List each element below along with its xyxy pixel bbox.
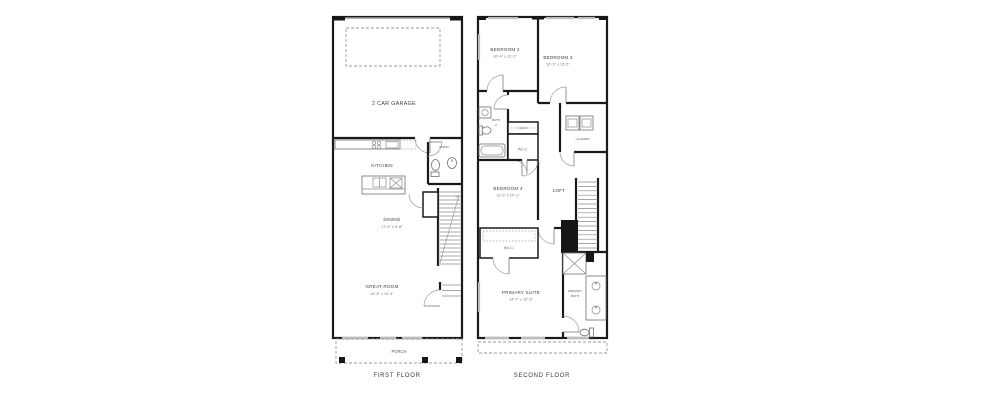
room-dims-dining: 17'-5" x 9'-8" — [381, 225, 403, 229]
room-label-primary-bath-line2: BATH — [571, 294, 579, 298]
room-label-pwdr: PWDR — [439, 145, 449, 149]
room-dims-bedroom4: 11'-0" x 10'-1" — [496, 194, 520, 198]
wall-post — [332, 16, 345, 21]
porch-post — [456, 357, 462, 363]
wall-post — [450, 16, 463, 21]
second-floor-windows — [485, 337, 589, 339]
room-dims-primary-suite: 14'-7" x 15'-3" — [509, 298, 533, 302]
second-floor-plan: BEDROOM 2 10'-4" x 11'-1" BEDROOM 3 10'-… — [477, 16, 608, 386]
second-floor-caption: SECOND FLOOR — [514, 373, 570, 379]
room-label-wic-primary: W.I.C. — [504, 246, 514, 250]
room-label-great-room: GREAT ROOM — [366, 284, 399, 289]
first-floor-caption: FIRST FLOOR — [373, 373, 420, 379]
room-label-primary-bath-line1: PRIMARY — [568, 289, 582, 293]
room-label-kitchen: KITCHEN — [371, 163, 393, 168]
floorplan-image: 2 CAR GARAGE KITCHEN PWDR — [0, 0, 1000, 409]
room-label-bath2: BATH — [492, 118, 500, 122]
room-dims-bedroom2: 10'-4" x 11'-1" — [493, 55, 517, 59]
room-label-loft: LOFT — [553, 188, 566, 193]
room-dims-bedroom3: 10'-3" x 13'-5" — [546, 63, 570, 67]
room-label-primary-suite: PRIMARY SUITE — [502, 290, 540, 295]
toilet — [580, 329, 589, 336]
room-label-bedroom4: BEDROOM 4 — [493, 186, 523, 191]
toilet — [431, 172, 439, 177]
room-label-laundry: LAUNDRY — [576, 137, 591, 141]
toilet-tank — [590, 328, 594, 337]
room-label-porch: PORCH — [391, 349, 406, 354]
room-label-wic-hall: W.I.C. — [518, 148, 528, 152]
sink — [448, 158, 457, 169]
room-label-bedroom2: BEDROOM 2 — [490, 47, 520, 52]
room-label-dining: DINING — [383, 217, 401, 222]
porch-roof-outline — [478, 342, 607, 353]
room-label-linen: LINEN — [519, 126, 527, 130]
vanity — [479, 107, 491, 118]
under-stair-closet — [423, 192, 438, 217]
room-label-bath2-number: 2 — [495, 123, 497, 127]
porch-post — [339, 357, 345, 363]
room-label-garage: 2 CAR GARAGE — [372, 101, 416, 107]
toilet — [482, 127, 491, 134]
chase — [561, 220, 578, 252]
room-dims-great-room: 14'-5" x 15'-4" — [370, 292, 394, 296]
room-label-bedroom3: BEDROOM 3 — [543, 55, 573, 60]
porch-post — [422, 357, 428, 363]
first-floor-plan: 2 CAR GARAGE KITCHEN PWDR — [332, 16, 463, 386]
